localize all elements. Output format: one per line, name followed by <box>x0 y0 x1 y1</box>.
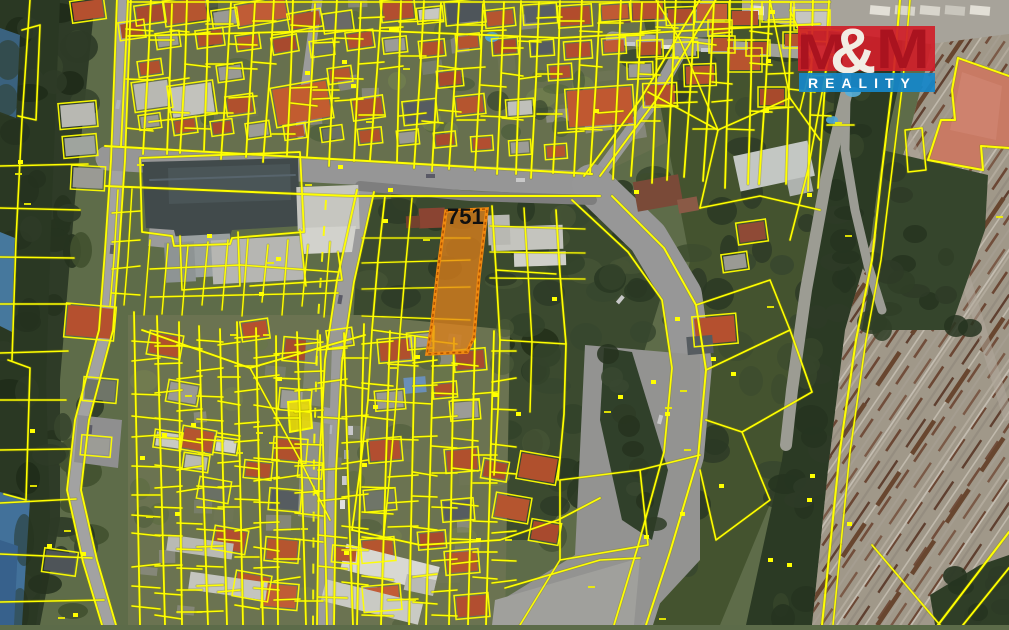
svg-text:M: M <box>876 17 930 80</box>
svg-text:REALITY: REALITY <box>808 75 917 91</box>
svg-text:751: 751 <box>447 204 484 229</box>
